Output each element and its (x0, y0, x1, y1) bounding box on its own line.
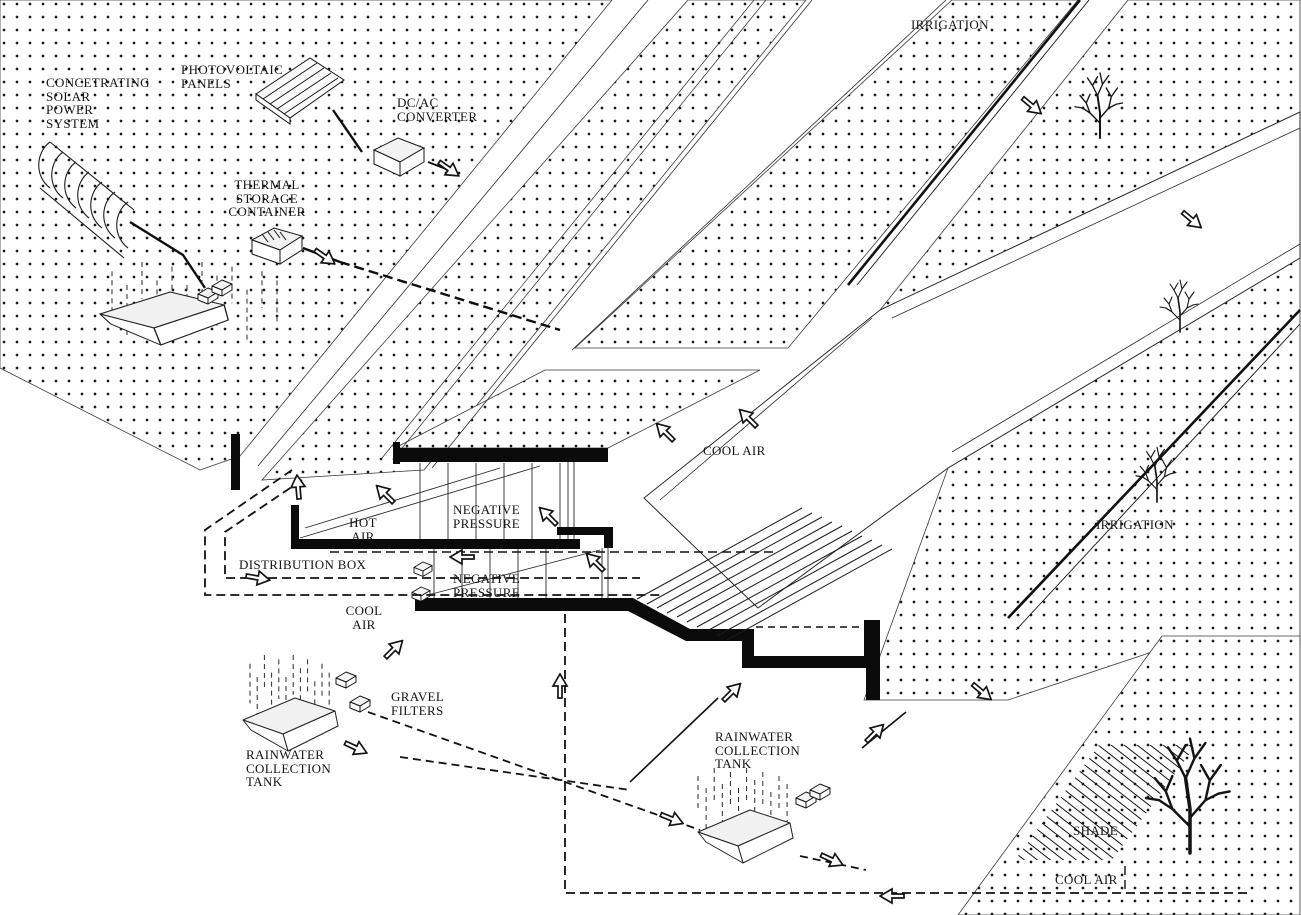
label-cool-air-center: COOL AIR (703, 444, 766, 458)
label-cool-air-left: COOL AIR (342, 604, 386, 631)
retaining-wall-cut (231, 434, 240, 490)
label-negative-pressure-lower: NEGATIVE PRESSURE (453, 572, 520, 599)
label-thermal-storage-container: THERMAL STORAGE CONTAINER (222, 178, 312, 219)
label-shade: SHADE (1073, 824, 1118, 838)
label-concentrating-solar-power-system: CONCETRATING SOLAR POWER SYSTEM (46, 76, 150, 130)
gravel-filter-icon (350, 696, 370, 712)
floor-ramp-basin-cut (415, 598, 880, 700)
axonometric-diagram (0, 0, 1301, 915)
gravel-filter-icon (810, 784, 830, 800)
rain-pipe-2 (400, 757, 630, 790)
label-gravel-filters: GRAVEL FILTERS (391, 690, 444, 717)
label-photovoltaic-panels: PHOTOVOLTAIC PANELS (181, 63, 283, 90)
label-hot-air: HOT AIR (344, 516, 382, 543)
pipe-to-basin (630, 698, 718, 782)
flow-arrow-icon (342, 737, 370, 760)
label-irrigation-right: IRRIGATION (1096, 518, 1174, 532)
rain-pipe-1 (368, 712, 700, 830)
flow-arrow-icon (880, 889, 904, 903)
label-irrigation-top: IRRIGATION (911, 18, 989, 32)
collection-tank-icon (698, 810, 793, 863)
label-cool-air-bottom: COOL AIR (1055, 873, 1118, 887)
flow-arrow-icon (818, 849, 846, 872)
label-distribution-box: DISTRIBUTION BOX (239, 558, 366, 572)
label-dc-ac-converter: DC/AC CONVERTER (397, 96, 477, 123)
label-rainwater-tank-left: RAINWATER COLLECTION TANK (246, 748, 331, 789)
distribution-box-icon (414, 562, 432, 576)
diagram-canvas: CONCETRATING SOLAR POWER SYSTEM PHOTOVOL… (0, 0, 1301, 915)
flow-arrow-icon (535, 503, 562, 530)
flow-arrow-icon (719, 679, 746, 706)
flow-arrow-icon (862, 720, 889, 747)
flow-arrow-icon (658, 808, 685, 830)
label-rainwater-tank-right: RAINWATER COLLECTION TANK (715, 730, 800, 771)
label-negative-pressure-upper: NEGATIVE PRESSURE (453, 503, 520, 530)
flow-arrow-icon (381, 636, 408, 663)
gravel-filter-icon (336, 672, 356, 688)
